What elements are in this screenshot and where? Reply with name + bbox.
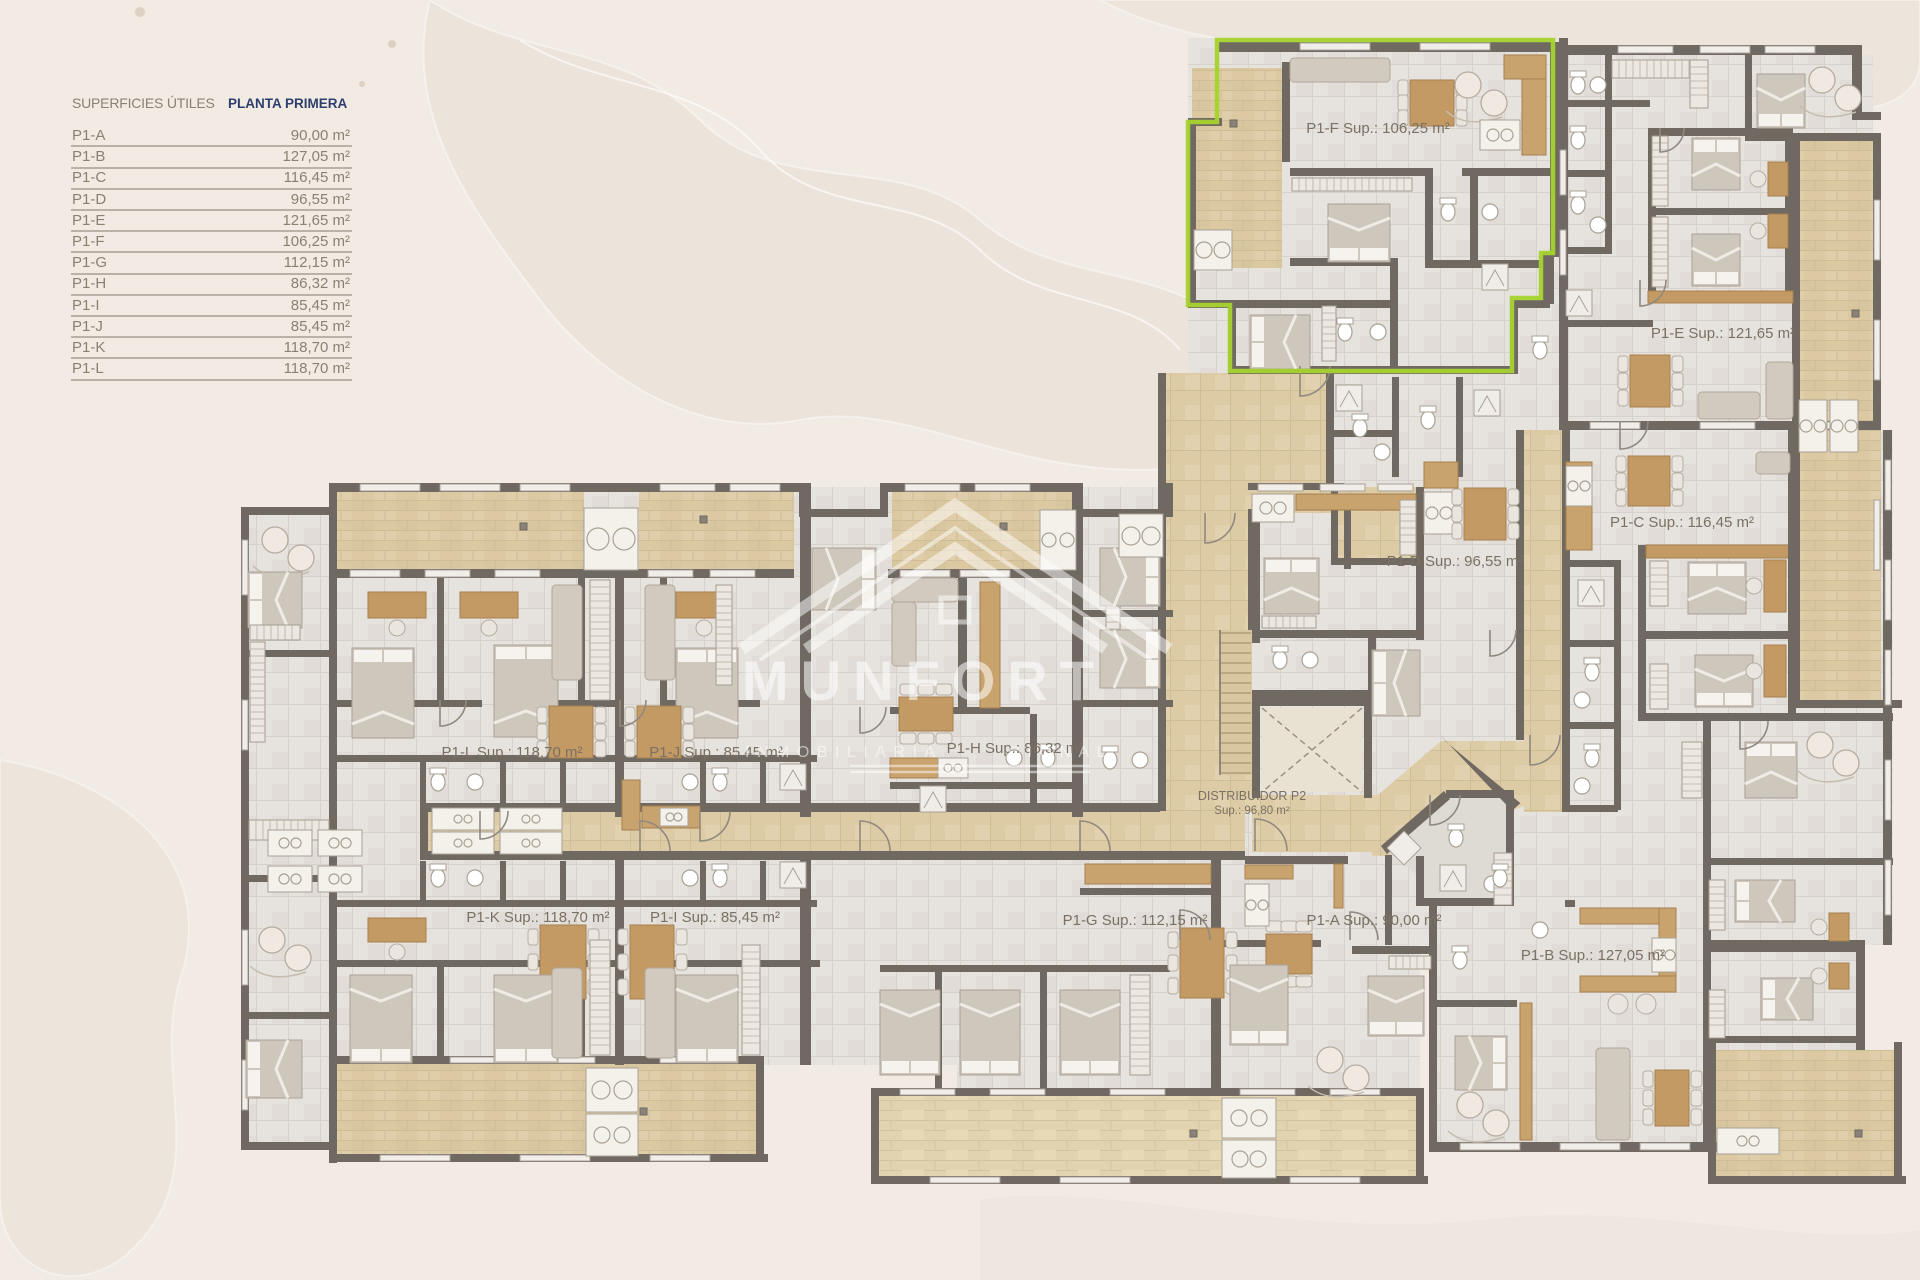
svg-text:112,15 m²: 112,15 m²	[284, 254, 350, 271]
svg-text:DISTRIBUIDOR P2: DISTRIBUIDOR P2	[1198, 789, 1306, 803]
svg-text:P1-I Sup.: 85,45 m²: P1-I Sup.: 85,45 m²	[650, 909, 780, 926]
svg-text:P1-G: P1-G	[72, 254, 107, 271]
svg-text:PLANTA PRIMERA: PLANTA PRIMERA	[228, 96, 347, 111]
svg-text:P1-K: P1-K	[72, 339, 105, 356]
svg-text:SUPERFICIES ÚTILES: SUPERFICIES ÚTILES	[72, 95, 215, 111]
svg-text:116,45 m²: 116,45 m²	[284, 169, 350, 186]
svg-text:P1-G Sup.: 112,15 m²: P1-G Sup.: 112,15 m²	[1063, 912, 1208, 929]
svg-text:P1-C Sup.: 116,45 m²: P1-C Sup.: 116,45 m²	[1610, 514, 1754, 531]
svg-text:118,70 m²: 118,70 m²	[284, 339, 350, 356]
svg-text:P1-A Sup.: 90,00 m²: P1-A Sup.: 90,00 m²	[1306, 912, 1441, 929]
svg-text:CIONAL: CIONAL	[1008, 744, 1113, 761]
svg-text:P1-F: P1-F	[72, 233, 105, 250]
svg-text:P1-E Sup.: 121,65 m²: P1-E Sup.: 121,65 m²	[1651, 325, 1795, 342]
svg-text:Sup.: 96,80 m²: Sup.: 96,80 m²	[1214, 805, 1290, 817]
svg-text:MUNFORT: MUNFORT	[742, 649, 1106, 712]
svg-text:106,25 m²: 106,25 m²	[282, 233, 350, 250]
svg-text:P1-H: P1-H	[72, 275, 106, 292]
svg-text:96,55 m²: 96,55 m²	[291, 191, 350, 208]
svg-text:P1-I: P1-I	[72, 297, 100, 314]
svg-text:P1-C: P1-C	[72, 169, 106, 186]
svg-text:121,65 m²: 121,65 m²	[282, 212, 350, 229]
svg-text:P1-A: P1-A	[72, 127, 105, 144]
svg-text:P1-D: P1-D	[72, 191, 106, 208]
svg-text:P1-K Sup.: 118,70 m²: P1-K Sup.: 118,70 m²	[466, 909, 609, 926]
svg-text:INMOBILIARIA: INMOBILIARIA	[745, 744, 943, 761]
svg-text:P1-B Sup.: 127,05 m²: P1-B Sup.: 127,05 m²	[1521, 947, 1665, 964]
svg-text:P1-B: P1-B	[72, 148, 105, 165]
svg-text:P1-D Sup.: 96,55 m²: P1-D Sup.: 96,55 m²	[1387, 553, 1524, 570]
svg-text:P1-E: P1-E	[72, 212, 105, 229]
svg-text:86,32 m²: 86,32 m²	[291, 275, 350, 292]
svg-text:127,05 m²: 127,05 m²	[282, 148, 350, 165]
svg-text:85,45 m²: 85,45 m²	[291, 318, 350, 335]
svg-text:118,70 m²: 118,70 m²	[284, 360, 350, 377]
svg-text:P1-F Sup.: 106,25 m²: P1-F Sup.: 106,25 m²	[1306, 120, 1449, 137]
svg-text:90,00 m²: 90,00 m²	[291, 127, 350, 144]
svg-text:P1-L Sup.: 118,70 m²: P1-L Sup.: 118,70 m²	[442, 744, 583, 761]
svg-text:P1-J: P1-J	[72, 318, 103, 335]
svg-text:P1-L: P1-L	[72, 360, 104, 377]
svg-text:85,45 m²: 85,45 m²	[291, 297, 350, 314]
